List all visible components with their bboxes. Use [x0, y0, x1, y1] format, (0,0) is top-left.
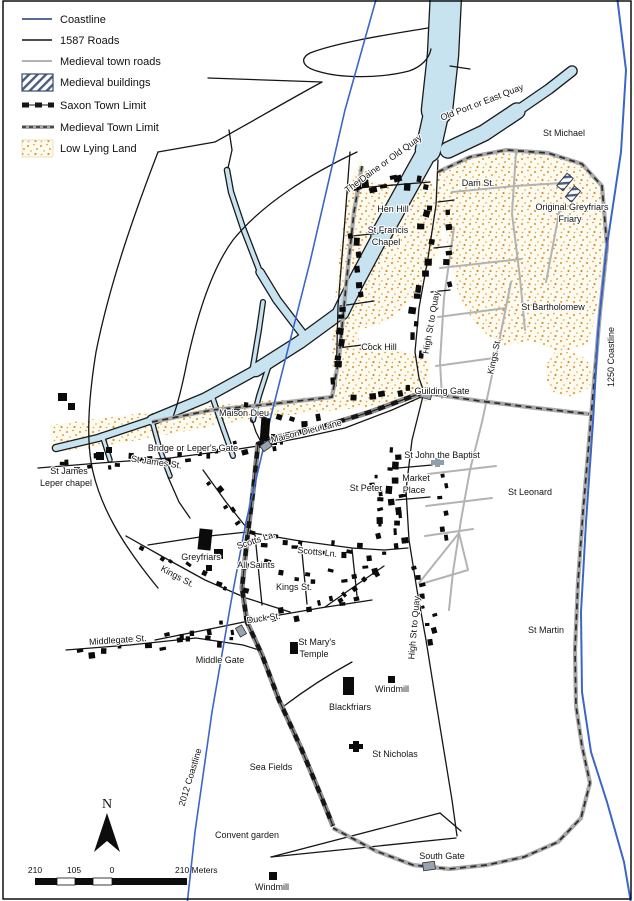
building	[392, 477, 399, 483]
legend-label: Low Lying Land	[60, 143, 137, 155]
building	[389, 447, 393, 453]
building	[60, 462, 65, 465]
building	[357, 543, 363, 548]
label-st-peter: St Peter	[350, 483, 383, 493]
building	[358, 292, 364, 298]
building	[68, 403, 75, 410]
north-label: N	[102, 797, 112, 812]
building	[443, 510, 448, 516]
building	[336, 327, 344, 335]
building	[427, 639, 433, 646]
building	[378, 390, 385, 397]
label-sea-fields: Sea Fields	[250, 762, 293, 772]
legend-label: 1587 Roads	[60, 35, 120, 47]
building	[115, 463, 120, 467]
label-friary: Original Greyfriars	[535, 202, 609, 212]
building	[88, 652, 95, 659]
greyfriars-building	[197, 528, 212, 550]
building	[106, 447, 112, 453]
building	[354, 266, 360, 273]
building	[186, 636, 190, 641]
building	[437, 496, 442, 500]
building	[394, 543, 399, 550]
label-lepers-gate: Bridge or Leper's Gate	[148, 443, 238, 453]
label-st-francis: St Francis	[368, 225, 409, 235]
building	[205, 635, 211, 640]
building	[440, 526, 445, 532]
building	[362, 565, 368, 569]
building	[408, 307, 416, 315]
building	[394, 521, 400, 526]
building	[229, 637, 233, 640]
label-st-francis: Chapel	[372, 237, 401, 247]
scale-segment	[112, 878, 187, 885]
label-friary: Friary	[559, 214, 582, 224]
building	[415, 285, 421, 293]
label-guilding-gate: Guilding Gate	[414, 386, 469, 396]
legend-item-medieval-buildings: Medieval buildings	[22, 74, 151, 91]
building	[392, 462, 399, 470]
label-windmill-1: Windmill	[375, 684, 409, 694]
building	[356, 251, 362, 258]
label-greyfriars: Greyfriars	[181, 552, 221, 562]
building	[145, 643, 152, 648]
st-james-chapel-building	[96, 452, 104, 460]
label-market-place: Place	[403, 485, 426, 495]
scale-tick: 105	[67, 865, 81, 875]
label-st-nicholas: St Nicholas	[372, 749, 418, 759]
scale-tick: 0	[110, 865, 115, 875]
building	[334, 355, 341, 360]
building	[283, 540, 288, 545]
windmill-marker	[388, 676, 395, 683]
building	[385, 486, 392, 494]
building	[443, 259, 449, 265]
building	[404, 183, 411, 191]
scale-segment	[57, 878, 75, 885]
building	[331, 540, 335, 546]
scale-segment	[35, 878, 57, 885]
building	[425, 623, 429, 626]
building	[351, 574, 357, 579]
label-dam-st: Dam St.	[462, 178, 495, 188]
label-market-place: Market	[402, 473, 430, 483]
label-all-saints: All Saints	[237, 560, 275, 570]
building	[446, 250, 453, 255]
building	[414, 293, 421, 299]
building	[422, 270, 429, 276]
building	[417, 224, 424, 230]
building	[261, 543, 268, 548]
building	[414, 321, 419, 327]
label-blackfriars: Blackfriars	[329, 702, 372, 712]
building	[58, 393, 67, 401]
building	[177, 637, 183, 642]
medieval-buildings-swatch	[22, 74, 53, 91]
building	[378, 522, 381, 526]
building	[305, 572, 310, 576]
building	[272, 446, 276, 451]
building	[338, 339, 345, 347]
building	[406, 385, 410, 391]
building	[428, 239, 434, 245]
blackfriars-building	[343, 677, 354, 695]
building	[101, 648, 107, 654]
building	[219, 620, 223, 624]
maison-dieu-building	[260, 418, 271, 442]
st-nicholas-church	[353, 741, 359, 752]
legend-label: Medieval town roads	[60, 56, 161, 68]
legend-item-low-lying-land: Low Lying Land	[22, 140, 137, 157]
label-south-gate: South Gate	[419, 851, 465, 861]
label-st-james-chapel: Leper chapel	[40, 478, 92, 488]
label-st-marys: St Mary's	[298, 637, 336, 647]
building	[206, 453, 210, 459]
label-cock-hill: Cock Hill	[361, 342, 397, 352]
legend-label: Medieval Town Limit	[60, 122, 159, 134]
scale-segment	[75, 878, 93, 885]
building	[424, 259, 431, 266]
label-st-marys: Temple	[299, 649, 328, 659]
map-background	[0, 0, 634, 901]
building	[388, 499, 395, 506]
windmill-marker	[269, 872, 277, 880]
building	[338, 314, 344, 318]
label-st-bartholomew: St Bartholomew	[521, 302, 585, 312]
legend-label: Medieval buildings	[60, 77, 151, 89]
building	[440, 473, 444, 477]
label-1250-coastline: 1250 Coastline	[606, 327, 616, 387]
building	[244, 402, 249, 408]
waterway	[437, 0, 446, 110]
building	[108, 465, 112, 470]
building	[393, 528, 396, 535]
building	[206, 565, 212, 571]
label-st-martin: St Martin	[528, 625, 564, 635]
building	[354, 238, 360, 246]
building	[64, 459, 68, 465]
scale-tick: 210 Meters	[175, 865, 218, 875]
building	[415, 575, 420, 580]
building	[278, 570, 284, 576]
label-maison-dieu: Maison Dieu	[219, 408, 269, 418]
label-hen-hill: Hen Hill	[377, 204, 409, 214]
low-lying-land-swatch	[22, 140, 53, 157]
legend-label: Coastline	[60, 14, 106, 26]
building	[423, 184, 429, 190]
building	[369, 393, 376, 400]
building	[445, 210, 450, 215]
label-st-john: St John the Baptist	[404, 450, 480, 460]
building	[348, 233, 354, 239]
building	[190, 631, 194, 636]
label-convent-garden: Convent garden	[215, 830, 279, 840]
scale-tick: 210	[28, 865, 42, 875]
building	[377, 497, 383, 501]
building	[445, 224, 452, 231]
building	[350, 394, 356, 400]
label-st-james-chapel: St James	[50, 466, 88, 476]
building	[334, 361, 342, 368]
building	[366, 555, 372, 561]
building	[306, 606, 312, 612]
building	[341, 552, 346, 558]
building	[382, 552, 386, 555]
map-canvas: Old Port or East Quay The Daine or Old Q…	[0, 0, 634, 901]
label-kings-st-small: Kings St.	[276, 582, 312, 592]
building	[427, 205, 432, 210]
scale-segment	[93, 878, 112, 885]
south-gate-symbol	[423, 861, 436, 871]
building	[217, 641, 222, 648]
building	[339, 307, 345, 312]
building	[410, 332, 414, 340]
legend-label: Saxon Town Limit	[60, 100, 146, 112]
building	[375, 475, 378, 479]
label-windmill-2: Windmill	[255, 882, 289, 892]
building	[401, 537, 408, 544]
building	[330, 377, 335, 384]
label-st-leonard: St Leonard	[508, 487, 552, 497]
building	[294, 577, 299, 581]
label-middle-gate: Middle Gate	[196, 655, 245, 665]
building	[395, 454, 402, 460]
label-st-michael: St Michael	[543, 128, 585, 138]
map-figure: Old Port or East Quay The Daine or Old Q…	[0, 0, 634, 901]
st-marys-building	[290, 642, 298, 654]
building	[356, 282, 362, 288]
building	[387, 467, 392, 471]
